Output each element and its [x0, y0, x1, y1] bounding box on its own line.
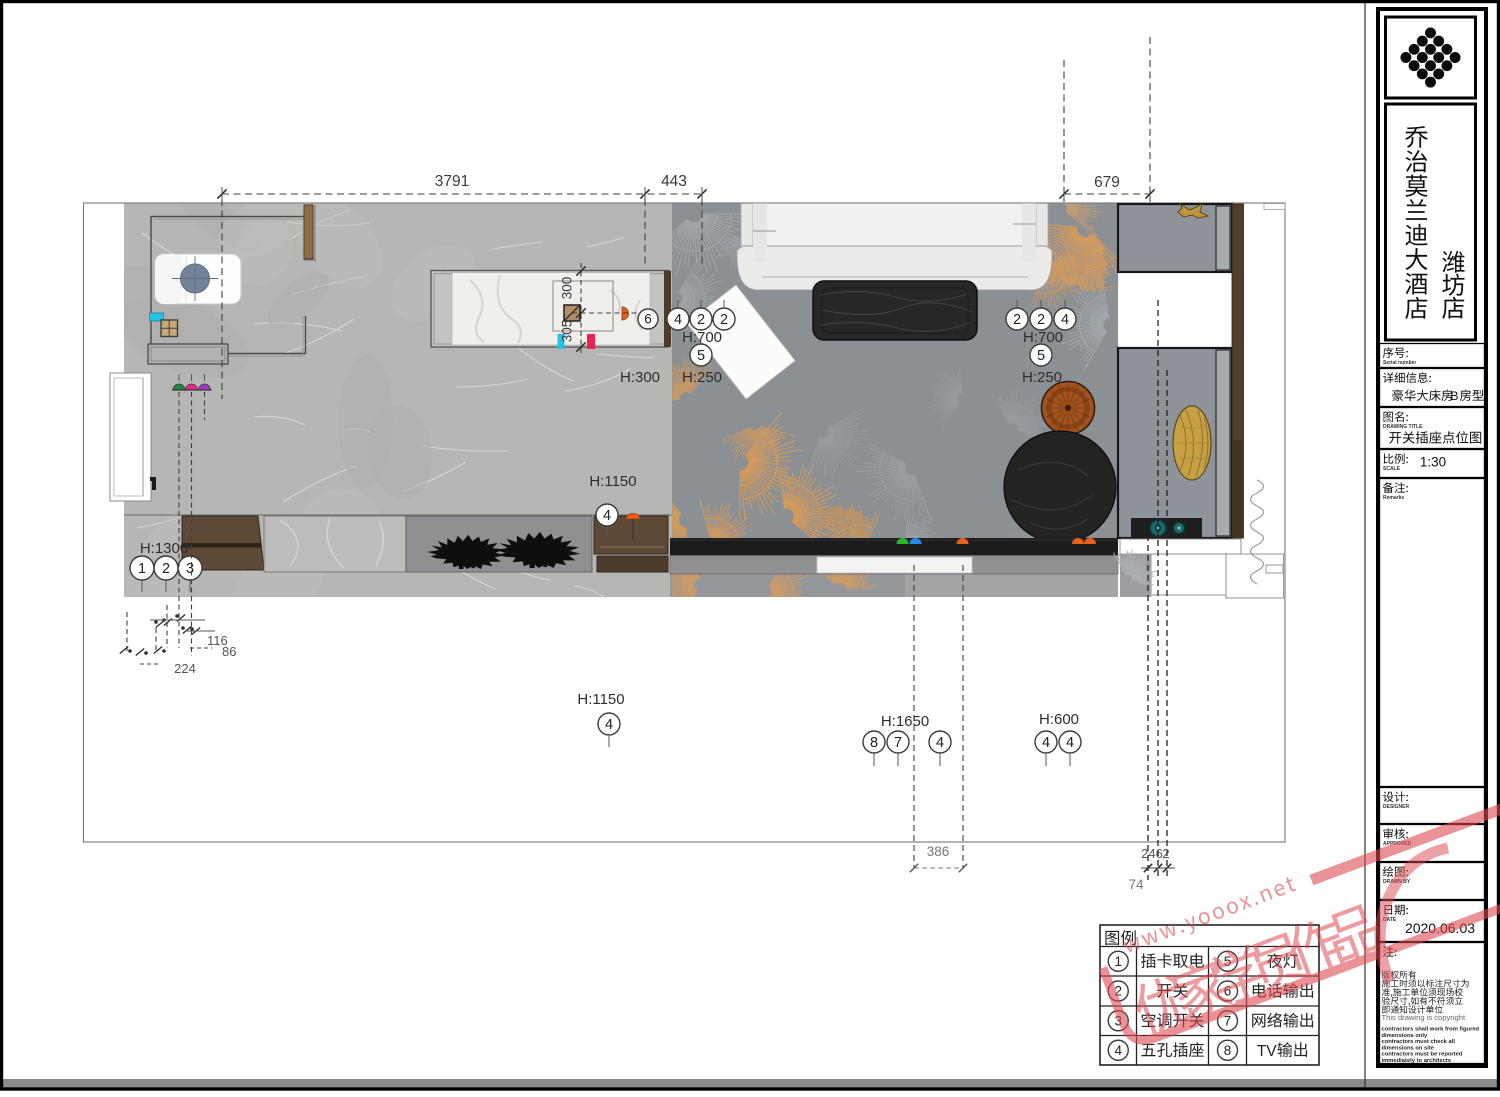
svg-text:3791: 3791	[435, 173, 469, 190]
svg-text:2: 2	[162, 561, 170, 577]
svg-text:246: 246	[1141, 846, 1163, 861]
svg-text:H:250: H:250	[682, 369, 722, 386]
svg-text:443: 443	[661, 173, 687, 190]
svg-text:H:600: H:600	[1039, 711, 1079, 728]
svg-text:Serial number: Serial number	[1383, 360, 1416, 366]
svg-text:H:1150: H:1150	[589, 473, 636, 490]
svg-text:dimensions only: dimensions only	[1382, 1033, 1429, 1039]
svg-text:4: 4	[936, 735, 944, 751]
svg-text:4: 4	[603, 508, 611, 524]
svg-text:86: 86	[222, 644, 236, 659]
svg-text:8: 8	[870, 735, 878, 751]
svg-text:contractors must be reported: contractors must be reported	[1382, 1052, 1463, 1058]
svg-text:4: 4	[1042, 735, 1050, 751]
svg-text:4: 4	[674, 312, 682, 328]
svg-text:2: 2	[1013, 312, 1021, 328]
svg-text:DESIGNER: DESIGNER	[1383, 804, 1410, 810]
svg-text:6: 6	[644, 312, 652, 327]
svg-text:B: B	[1450, 389, 1458, 403]
svg-text:4: 4	[1114, 1043, 1122, 1058]
svg-text:224: 224	[174, 661, 196, 676]
svg-text:H:250: H:250	[1022, 369, 1062, 386]
svg-text:H:700: H:700	[1023, 329, 1063, 346]
svg-text:300: 300	[560, 277, 575, 300]
svg-text:2: 2	[1162, 846, 1169, 861]
svg-text:2: 2	[720, 312, 728, 328]
svg-text:TV: TV	[1257, 1043, 1277, 1060]
svg-text:contractors shall work from fi: contractors shall work from figured	[1382, 1027, 1480, 1033]
svg-text:This drawing is copyright: This drawing is copyright	[1382, 1013, 1466, 1022]
svg-text:305: 305	[560, 320, 575, 343]
svg-text:immediately to architects: immediately to architects	[1382, 1058, 1452, 1064]
svg-text:5: 5	[1037, 348, 1045, 364]
svg-text:H:1150: H:1150	[577, 691, 624, 708]
svg-text:3: 3	[186, 561, 194, 577]
svg-text:5: 5	[697, 348, 705, 364]
svg-text:4: 4	[605, 717, 613, 733]
svg-text:8: 8	[1224, 1043, 1232, 1058]
svg-text:74: 74	[1128, 877, 1144, 892]
svg-text:H:1650: H:1650	[881, 713, 929, 730]
svg-text:contractors must check all: contractors must check all	[1382, 1039, 1456, 1045]
svg-text:H:1300: H:1300	[140, 540, 188, 557]
svg-text:dimensions on site: dimensions on site	[1382, 1045, 1435, 1051]
svg-text:SCALE: SCALE	[1383, 466, 1401, 472]
svg-text:2: 2	[1037, 312, 1045, 328]
svg-text:7: 7	[894, 735, 902, 751]
svg-text:4: 4	[1066, 735, 1074, 751]
svg-text:DRAWING TITLE: DRAWING TITLE	[1383, 424, 1423, 430]
svg-text:1:30: 1:30	[1420, 455, 1446, 470]
svg-text:H:300: H:300	[620, 369, 660, 386]
svg-text:1: 1	[138, 561, 146, 577]
svg-text:4: 4	[1061, 312, 1069, 328]
svg-text:2: 2	[697, 312, 705, 328]
svg-text:1: 1	[1114, 954, 1122, 969]
svg-text:386: 386	[927, 844, 950, 859]
svg-text:Remarks: Remarks	[1383, 495, 1404, 501]
svg-text:679: 679	[1094, 174, 1120, 191]
